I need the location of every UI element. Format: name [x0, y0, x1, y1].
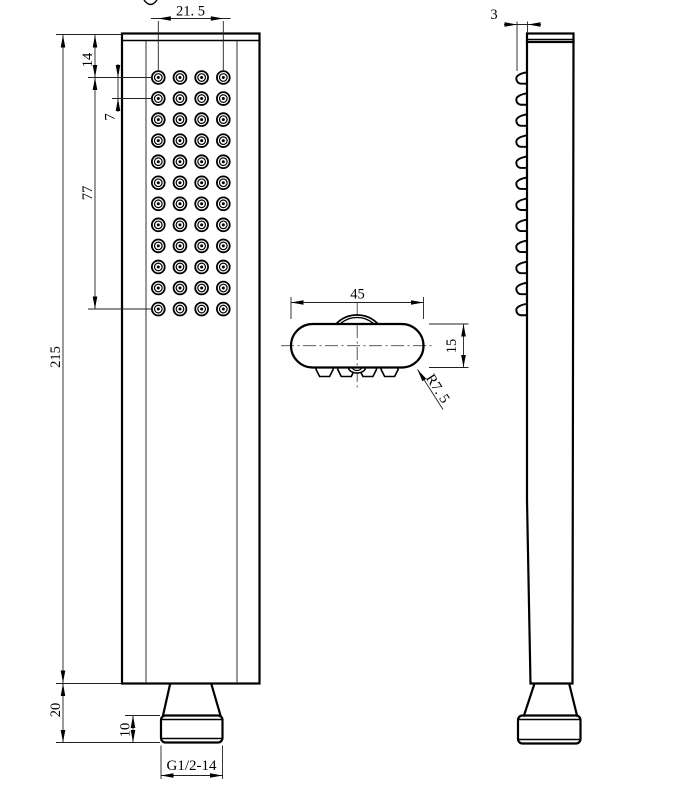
nozzle-profile-bump	[516, 241, 527, 253]
nozzle-tab	[316, 368, 333, 377]
nozzle	[217, 71, 230, 84]
nozzle	[217, 240, 230, 253]
handle-body-outline	[122, 34, 260, 684]
dim-label-3: 3	[490, 7, 497, 23]
nozzle	[174, 303, 187, 316]
nozzle	[195, 261, 208, 274]
nozzle	[195, 113, 208, 126]
drawing-canvas: 21. 5 215 14 7 77 20 10	[0, 0, 689, 794]
nozzle	[195, 176, 208, 189]
nozzle	[195, 134, 208, 147]
nozzle	[217, 197, 230, 210]
nozzle-profile-bump	[516, 177, 527, 189]
nozzle-grid	[152, 71, 230, 315]
nozzle-profile-bump	[516, 283, 527, 295]
nozzle	[195, 92, 208, 105]
top-view	[281, 303, 434, 389]
nozzle	[152, 176, 165, 189]
nozzle	[217, 261, 230, 274]
nozzle	[217, 155, 230, 168]
nozzle	[174, 176, 187, 189]
nozzle	[217, 218, 230, 231]
nozzle	[174, 261, 187, 274]
nozzle	[152, 134, 165, 147]
nozzle-profile-bump	[516, 304, 527, 316]
nozzle	[152, 113, 165, 126]
nozzle	[195, 282, 208, 295]
dim-label-14: 14	[80, 52, 96, 67]
nozzle	[195, 197, 208, 210]
nozzle-profile-bump	[516, 114, 527, 126]
nozzle	[174, 134, 187, 147]
dim-label-r7-5: R7. 5	[422, 371, 453, 406]
nozzle	[217, 134, 230, 147]
nozzle	[195, 240, 208, 253]
nozzle-profile-bump	[516, 262, 527, 274]
dim-label-thread: G1/2-14	[167, 758, 217, 774]
nozzle	[174, 92, 187, 105]
side-cap-outline	[527, 34, 574, 43]
dim-label-45: 45	[350, 287, 365, 303]
side-inlet-taper	[524, 685, 577, 716]
nozzle	[152, 261, 165, 274]
nozzle	[174, 71, 187, 84]
nozzle	[152, 92, 165, 105]
dim-label-15: 15	[444, 339, 460, 354]
side-nut-detail-lines	[519, 720, 580, 740]
nozzle	[174, 282, 187, 295]
nozzle	[174, 197, 187, 210]
dim-nozzle-span-21-5: 21. 5	[151, 4, 231, 71]
dim-thread-g12: G1/2-14	[161, 746, 223, 780]
nozzle	[217, 303, 230, 316]
inlet-taper	[163, 685, 221, 716]
nozzle	[217, 113, 230, 126]
dim-spray-field-77: 77	[80, 78, 152, 310]
nozzle-profile-bump	[516, 135, 527, 147]
nozzle-tab	[381, 368, 398, 377]
dim-label-21-5: 21. 5	[176, 4, 205, 20]
dim-nut-10: 10	[118, 716, 161, 743]
nozzle-profile-bump	[516, 220, 527, 232]
nozzle	[174, 155, 187, 168]
nozzle	[174, 218, 187, 231]
nozzle	[152, 218, 165, 231]
nozzle	[152, 303, 165, 316]
dim-label-215: 215	[48, 346, 64, 368]
dim-label-7: 7	[103, 113, 119, 120]
nozzle-profile-bump	[516, 72, 527, 84]
nozzle-profile-column	[516, 72, 527, 315]
nozzle	[152, 197, 165, 210]
nozzle-profile-bump	[516, 93, 527, 105]
dim-head-depth-15: 15	[429, 324, 469, 368]
nozzle	[152, 282, 165, 295]
dim-total-length-215: 215	[48, 35, 122, 684]
side-body-outline	[527, 42, 574, 684]
technical-drawing: 21. 5 215 14 7 77 20 10	[0, 0, 689, 794]
nozzle	[152, 71, 165, 84]
nozzle-profile-bump	[516, 199, 527, 211]
nozzle	[174, 113, 187, 126]
dim-label-10: 10	[118, 723, 134, 738]
nozzle	[217, 176, 230, 189]
nozzle	[195, 218, 208, 231]
nozzle	[217, 282, 230, 295]
dim-tail-20: 20	[48, 684, 160, 743]
cropped-annotation-arc	[144, 0, 157, 5]
nozzle	[152, 155, 165, 168]
nut-detail-lines	[162, 720, 222, 739]
dim-row-pitch-7: 7	[103, 64, 153, 121]
nozzle	[195, 155, 208, 168]
nozzle-profile-bump	[516, 156, 527, 168]
nozzle	[174, 240, 187, 253]
front-view	[122, 34, 260, 743]
side-view	[516, 34, 580, 744]
nozzle	[195, 71, 208, 84]
nozzle	[152, 240, 165, 253]
nozzle	[217, 92, 230, 105]
dim-top-offset-14: 14	[80, 35, 152, 78]
nozzle	[195, 303, 208, 316]
dim-label-20: 20	[48, 703, 64, 718]
dim-corner-radius-r75: R7. 5	[416, 368, 453, 409]
dim-label-77: 77	[80, 186, 96, 201]
